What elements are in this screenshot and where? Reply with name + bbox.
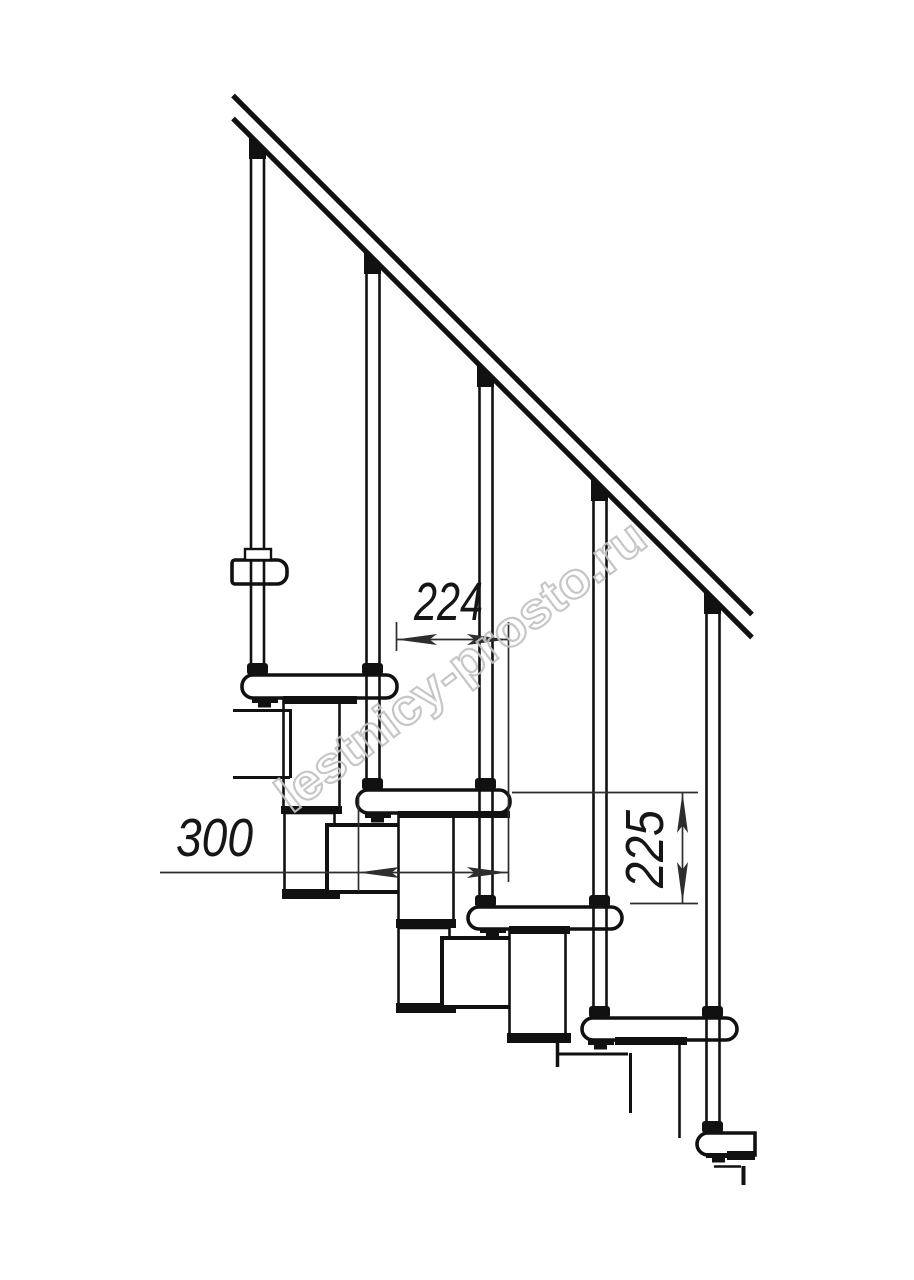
under-tread-bar-2 bbox=[398, 811, 510, 818]
under-tread-bar-1 bbox=[283, 696, 357, 704]
module-box-upper-3 bbox=[510, 930, 566, 1036]
dim-225-label: 225 bbox=[615, 809, 675, 889]
module-plate-2a bbox=[396, 919, 456, 928]
tread-2 bbox=[357, 790, 510, 813]
bolt-connector-1 bbox=[252, 698, 278, 708]
dimension-225: 225 bbox=[512, 792, 698, 904]
module-square-3-cut bbox=[558, 1053, 631, 1113]
tread-0-end-view bbox=[232, 560, 287, 584]
baluster-1 bbox=[251, 157, 264, 675]
baluster-collar bbox=[589, 895, 610, 907]
watermark-text: lestnicy-prosto.ru bbox=[265, 508, 656, 822]
bolt-connector-5 bbox=[706, 1153, 732, 1163]
tread-4 bbox=[582, 1018, 737, 1040]
baluster-collar bbox=[589, 1006, 610, 1018]
baluster-collar bbox=[475, 895, 496, 907]
baluster-collar bbox=[362, 778, 383, 790]
baluster-collar bbox=[702, 1006, 723, 1018]
module-box-upper-2 bbox=[399, 813, 454, 923]
baluster-collar bbox=[702, 1121, 723, 1133]
staircase-technical-drawing: 224 300 225 lestnicy-prosto.ru bbox=[0, 0, 914, 1280]
baluster-5 bbox=[707, 612, 720, 1133]
baluster-collar bbox=[362, 663, 383, 675]
under-tread-bar-3 bbox=[509, 926, 570, 934]
bolt-connector-4 bbox=[588, 1040, 614, 1050]
module-plate-3a bbox=[507, 1033, 571, 1043]
baluster-collar bbox=[247, 663, 268, 675]
dim-300-label: 300 bbox=[176, 808, 253, 868]
drawing-canvas: 224 300 225 lestnicy-prosto.ru bbox=[0, 0, 914, 1280]
baluster-collar bbox=[475, 778, 496, 790]
bolt-connector-2 bbox=[365, 813, 391, 823]
tread-1 bbox=[242, 675, 397, 698]
baluster-1-sleeve bbox=[245, 549, 271, 560]
tread-3 bbox=[468, 907, 622, 929]
module-square-1 bbox=[327, 825, 405, 892]
under-tread-bar-4 bbox=[615, 1037, 687, 1045]
